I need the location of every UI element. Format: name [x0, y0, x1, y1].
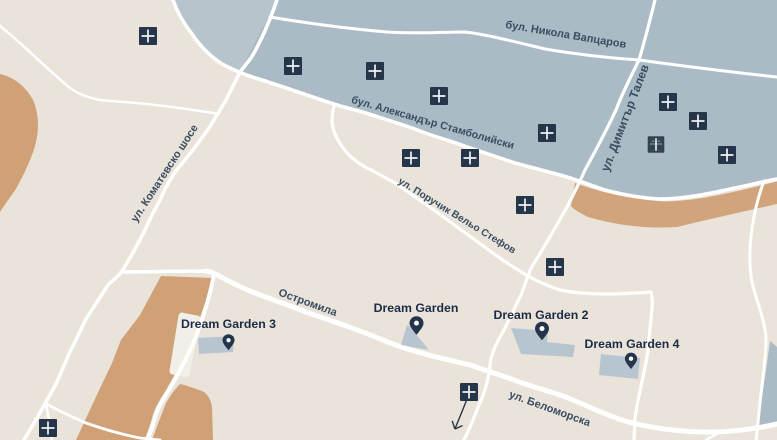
- svg-text:Dream Garden: Dream Garden: [374, 301, 459, 315]
- svg-text:Dream Garden 2: Dream Garden 2: [493, 308, 588, 322]
- svg-text:Dream Garden 4: Dream Garden 4: [584, 337, 679, 351]
- svg-text:Dream Garden 3: Dream Garden 3: [181, 317, 276, 331]
